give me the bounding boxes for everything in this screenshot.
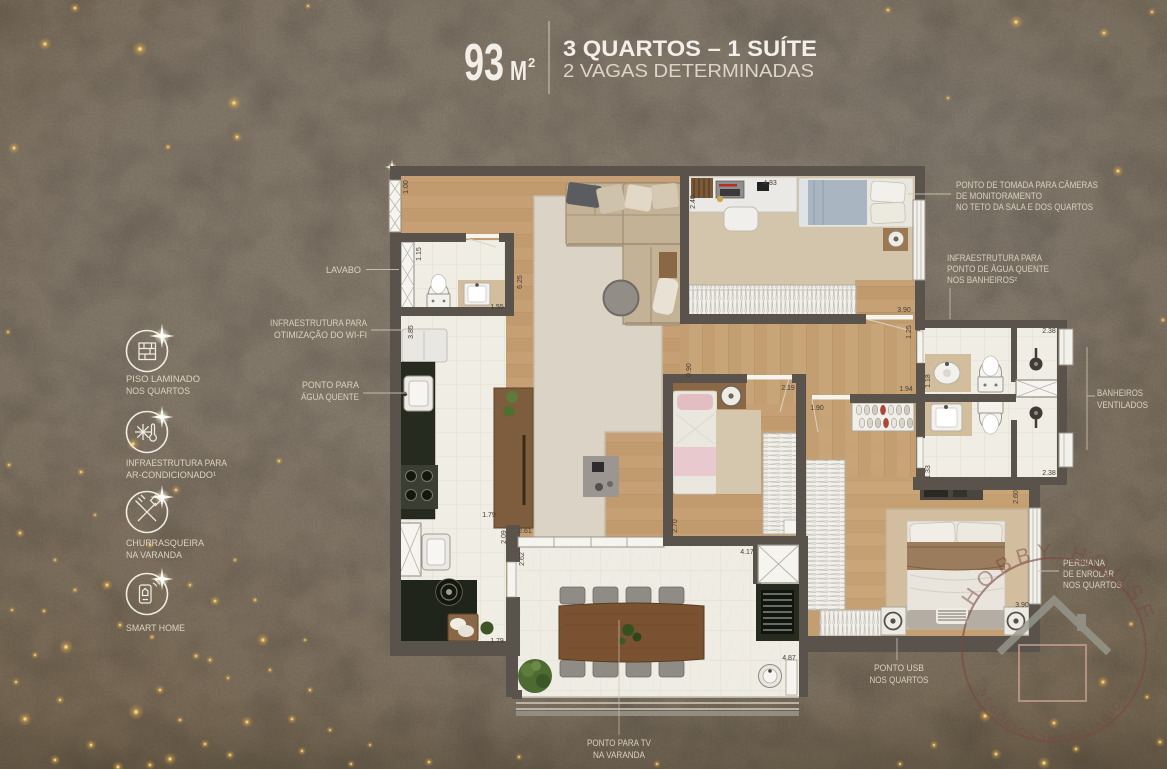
svg-text:1.55: 1.55 <box>490 304 504 311</box>
svg-text:1.18: 1.18 <box>925 374 932 388</box>
svg-text:2.60: 2.60 <box>1013 490 1020 504</box>
svg-text:2: 2 <box>528 55 535 70</box>
svg-text:NO TETO DA SALA E DOS QUARTOS: NO TETO DA SALA E DOS QUARTOS <box>956 202 1093 212</box>
svg-text:NOS QUARTOS: NOS QUARTOS <box>126 386 190 397</box>
svg-text:3 QUARTOS – 1 SUÍTE: 3 QUARTOS – 1 SUÍTE <box>563 36 817 61</box>
svg-text:2.62: 2.62 <box>519 552 526 566</box>
svg-text:PISO LAMINADO: PISO LAMINADO <box>126 374 200 385</box>
svg-text:NOS BANHEIROS²: NOS BANHEIROS² <box>947 275 1017 285</box>
svg-text:4.87: 4.87 <box>782 655 796 662</box>
svg-text:M: M <box>510 55 527 86</box>
svg-text:0.90: 0.90 <box>686 363 693 377</box>
svg-text:AR-CONDICIONADO¹: AR-CONDICIONADO¹ <box>126 470 216 481</box>
svg-text:3.90: 3.90 <box>897 307 911 314</box>
svg-text:NA VARANDA: NA VARANDA <box>126 550 183 561</box>
svg-text:BANHEIROS: BANHEIROS <box>1097 388 1143 398</box>
svg-text:PONTO DE TOMADA PARA CÂMERAS: PONTO DE TOMADA PARA CÂMERAS <box>956 180 1098 190</box>
svg-text:INFRAESTRUTURA PARA: INFRAESTRUTURA PARA <box>270 318 367 328</box>
svg-text:1.25: 1.25 <box>906 325 913 339</box>
svg-text:2.61: 2.61 <box>518 528 532 535</box>
svg-text:2.19: 2.19 <box>781 385 795 392</box>
svg-text:2.38: 2.38 <box>1042 328 1056 335</box>
svg-text:DE MONITORAMENTO: DE MONITORAMENTO <box>956 191 1042 201</box>
svg-text:1.33: 1.33 <box>925 465 932 479</box>
svg-text:1.94: 1.94 <box>899 386 913 393</box>
svg-text:1.15: 1.15 <box>416 247 423 261</box>
svg-text:SMART HOME: SMART HOME <box>126 623 185 634</box>
svg-text:2.40: 2.40 <box>690 195 697 209</box>
svg-text:93: 93 <box>464 34 504 92</box>
svg-text:3.90: 3.90 <box>1015 602 1029 609</box>
svg-text:CHURRASQUEIRA: CHURRASQUEIRA <box>126 538 205 549</box>
svg-text:4.83: 4.83 <box>763 180 777 187</box>
svg-text:2.70: 2.70 <box>672 519 679 533</box>
svg-text:PONTO PARA: PONTO PARA <box>302 380 359 390</box>
svg-text:2.38: 2.38 <box>1042 470 1056 477</box>
svg-text:1.79: 1.79 <box>482 512 496 519</box>
svg-text:3.85: 3.85 <box>408 325 415 339</box>
svg-text:2.09: 2.09 <box>501 530 508 544</box>
svg-text:PONTO USB: PONTO USB <box>874 663 924 673</box>
svg-text:PONTO PARA TV: PONTO PARA TV <box>587 738 651 748</box>
svg-text:4.17: 4.17 <box>740 549 754 556</box>
svg-text:6.25: 6.25 <box>517 275 524 289</box>
svg-text:OTIMIZAÇÃO DO WI-FI: OTIMIZAÇÃO DO WI-FI <box>274 330 367 340</box>
svg-text:INFRAESTRUTURA PARA: INFRAESTRUTURA PARA <box>126 458 228 469</box>
svg-text:PONTO DE ÁGUA QUENTE: PONTO DE ÁGUA QUENTE <box>947 264 1049 274</box>
svg-text:1.00: 1.00 <box>403 180 410 194</box>
svg-text:NA VARANDA: NA VARANDA <box>593 750 645 760</box>
svg-text:1.90: 1.90 <box>810 405 824 412</box>
svg-text:INFRAESTRUTURA PARA: INFRAESTRUTURA PARA <box>947 253 1042 263</box>
svg-text:2 VAGAS DETERMINADAS: 2 VAGAS DETERMINADAS <box>563 60 814 81</box>
svg-text:LAVABO: LAVABO <box>326 265 361 275</box>
svg-text:VENTILADOS: VENTILADOS <box>1097 400 1148 410</box>
svg-text:NOS QUARTOS: NOS QUARTOS <box>870 675 929 685</box>
svg-text:ÁGUA QUENTE: ÁGUA QUENTE <box>301 392 359 402</box>
svg-text:1.79: 1.79 <box>490 638 504 645</box>
